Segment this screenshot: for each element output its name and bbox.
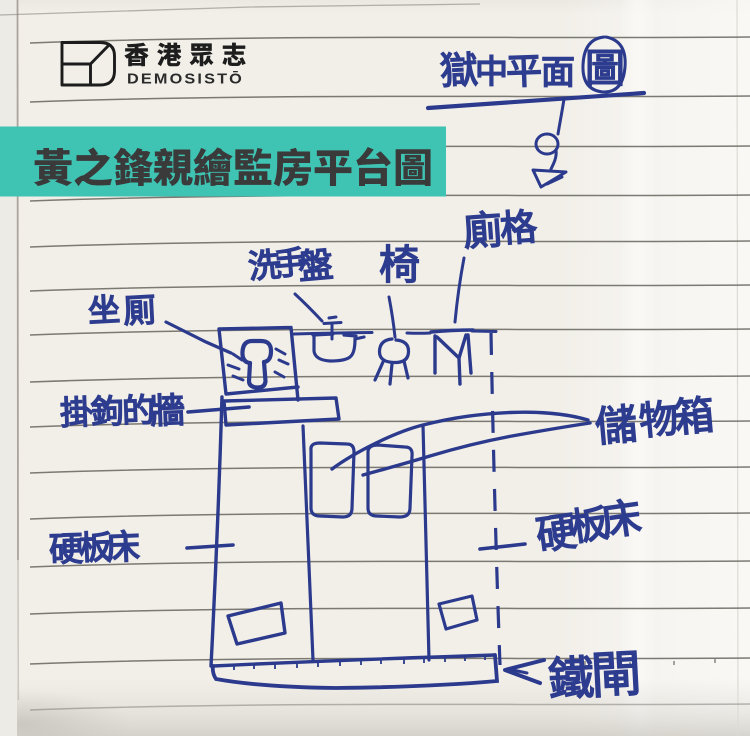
svg-text:DEMOSISTŌ: DEMOSISTŌ [127, 71, 244, 88]
